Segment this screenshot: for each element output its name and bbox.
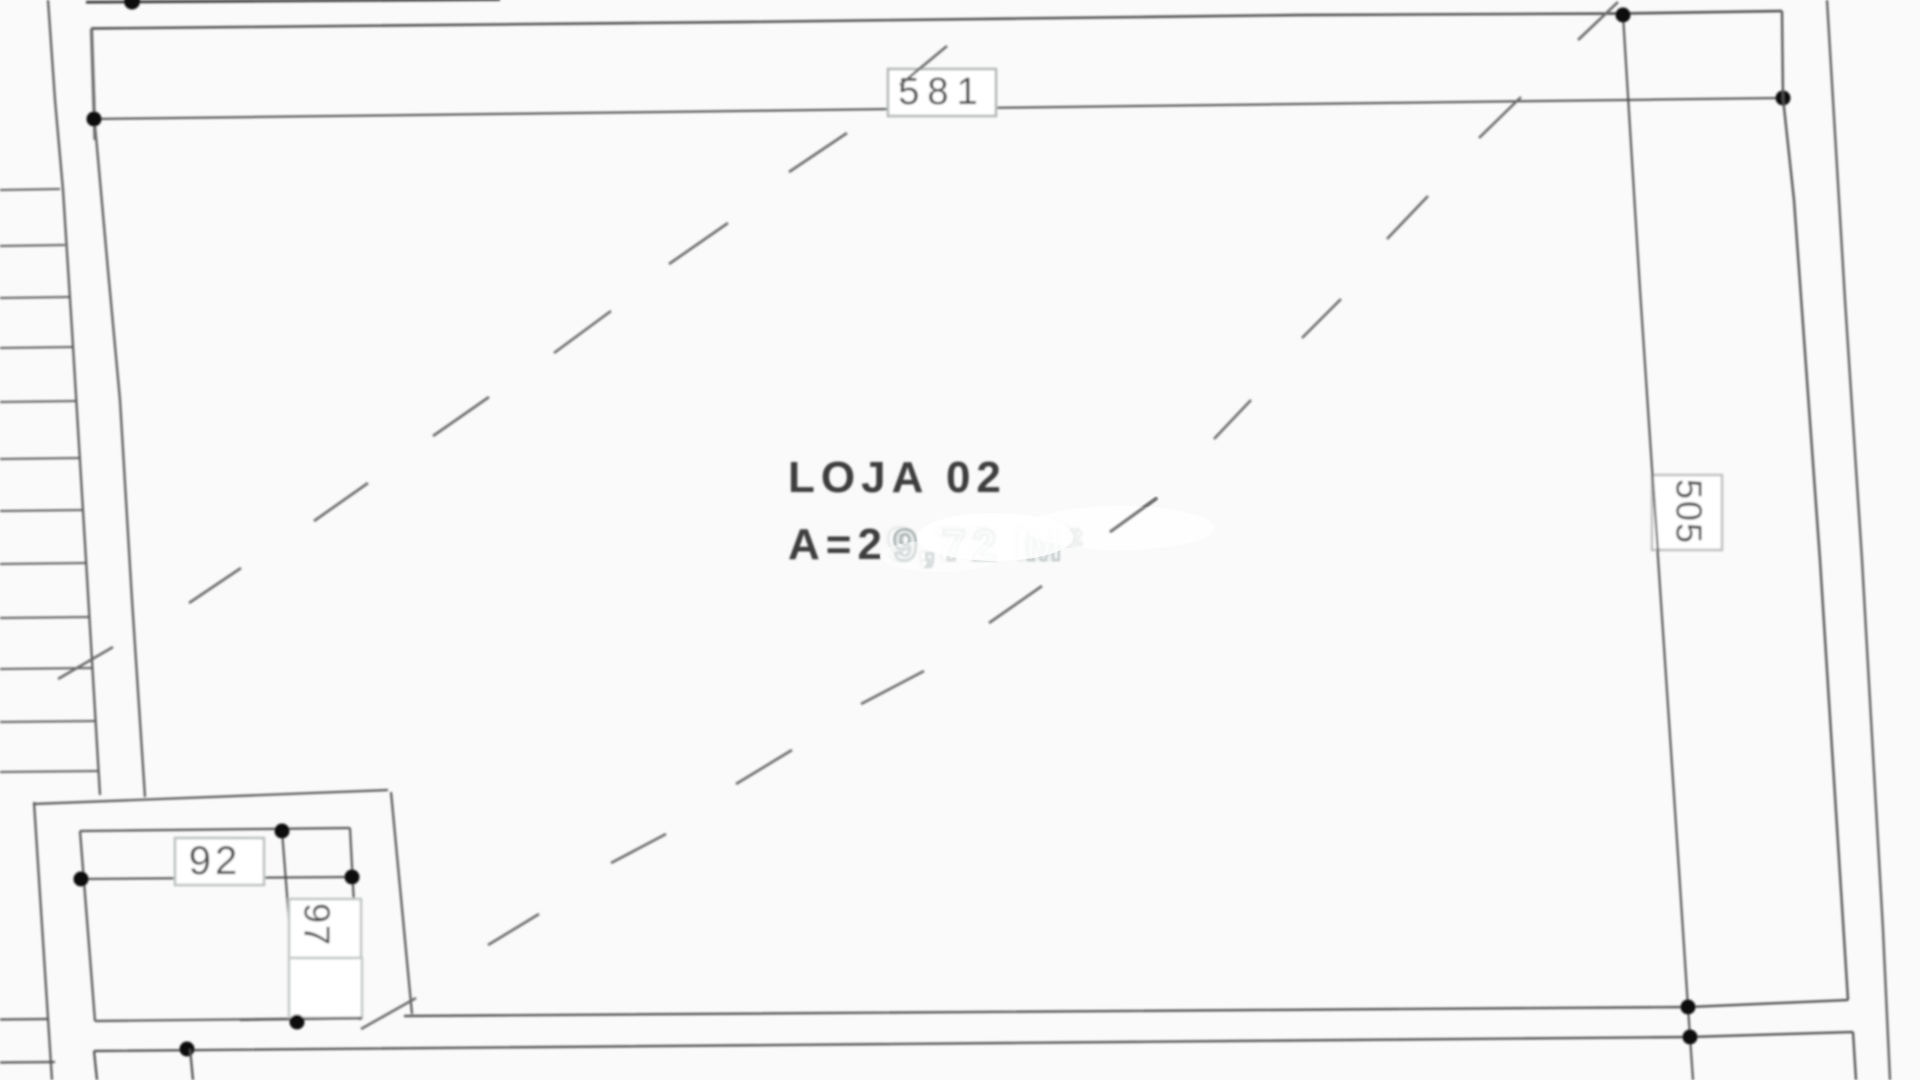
svg-text:581: 581	[898, 71, 985, 113]
svg-text:505: 505	[1668, 479, 1709, 545]
svg-text:92: 92	[189, 839, 242, 883]
svg-text:97: 97	[296, 903, 337, 947]
svg-text:LOJA 02: LOJA 02	[788, 453, 1007, 502]
